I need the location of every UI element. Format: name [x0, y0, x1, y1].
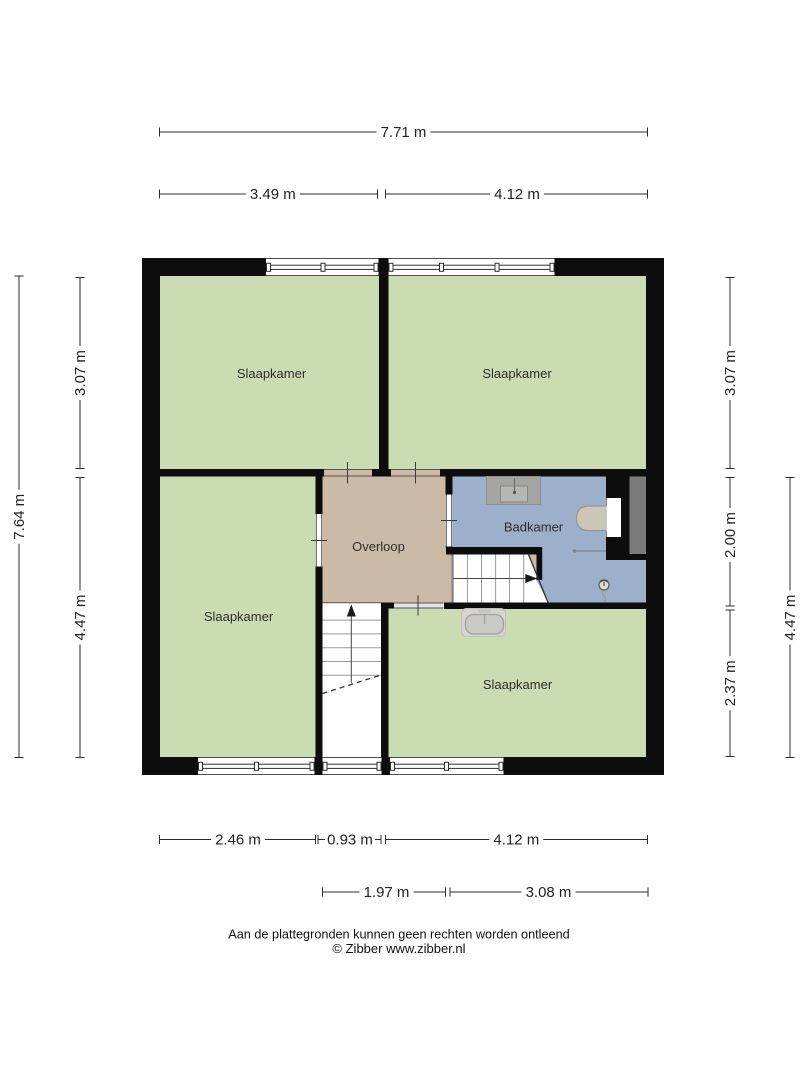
- svg-text:0.93 m: 0.93 m: [327, 832, 373, 849]
- svg-text:3.49 m: 3.49 m: [250, 186, 296, 203]
- svg-text:4.47 m: 4.47 m: [782, 595, 799, 641]
- svg-text:2.00 m: 2.00 m: [722, 512, 739, 558]
- svg-text:Slaapkamer: Slaapkamer: [237, 366, 307, 381]
- svg-text:4.47 m: 4.47 m: [72, 595, 89, 641]
- svg-text:3.07 m: 3.07 m: [722, 350, 739, 396]
- svg-text:1.97 m: 1.97 m: [364, 884, 410, 901]
- svg-text:© Zibber www.zibber.nl: © Zibber www.zibber.nl: [332, 941, 465, 956]
- svg-text:4.12 m: 4.12 m: [493, 832, 539, 849]
- svg-text:7.71 m: 7.71 m: [381, 124, 427, 141]
- svg-text:7.64 m: 7.64 m: [11, 494, 28, 540]
- svg-text:3.07 m: 3.07 m: [72, 350, 89, 396]
- svg-text:Aan de plattegronden kunnen ge: Aan de plattegronden kunnen geen rechten…: [228, 928, 569, 942]
- svg-text:Slaapkamer: Slaapkamer: [483, 677, 553, 692]
- svg-text:4.12 m: 4.12 m: [494, 186, 540, 203]
- svg-text:2.37 m: 2.37 m: [722, 660, 739, 706]
- svg-text:Slaapkamer: Slaapkamer: [204, 609, 274, 624]
- svg-text:Badkamer: Badkamer: [504, 520, 564, 535]
- svg-text:Overloop: Overloop: [352, 539, 405, 554]
- svg-text:3.08 m: 3.08 m: [526, 884, 572, 901]
- svg-text:2.46 m: 2.46 m: [215, 832, 261, 849]
- svg-text:Slaapkamer: Slaapkamer: [482, 366, 552, 381]
